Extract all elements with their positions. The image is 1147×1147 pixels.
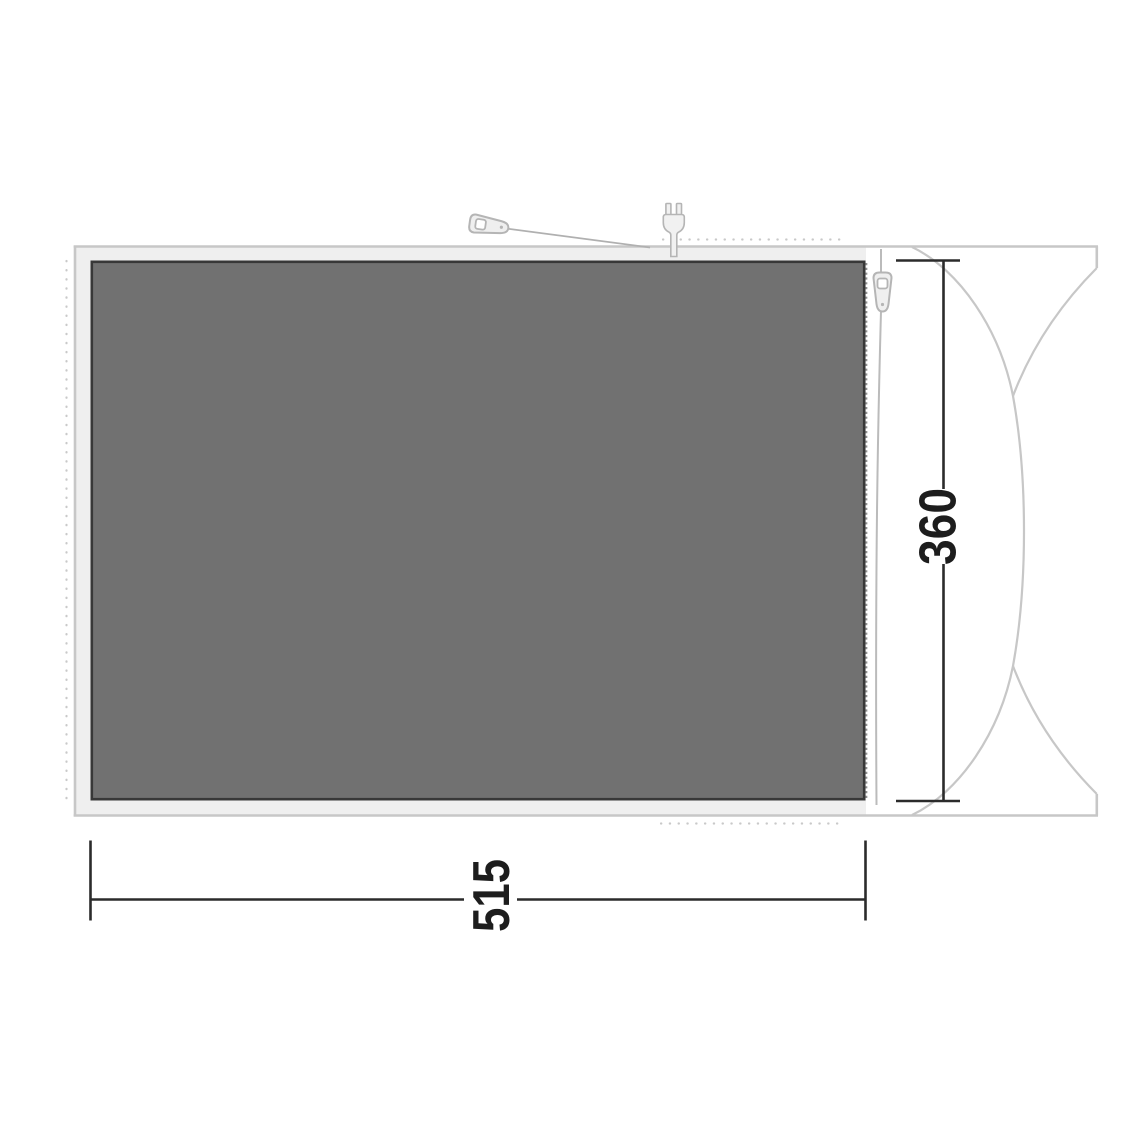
svg-text:360: 360 — [910, 488, 968, 565]
svg-text:515: 515 — [463, 859, 521, 932]
